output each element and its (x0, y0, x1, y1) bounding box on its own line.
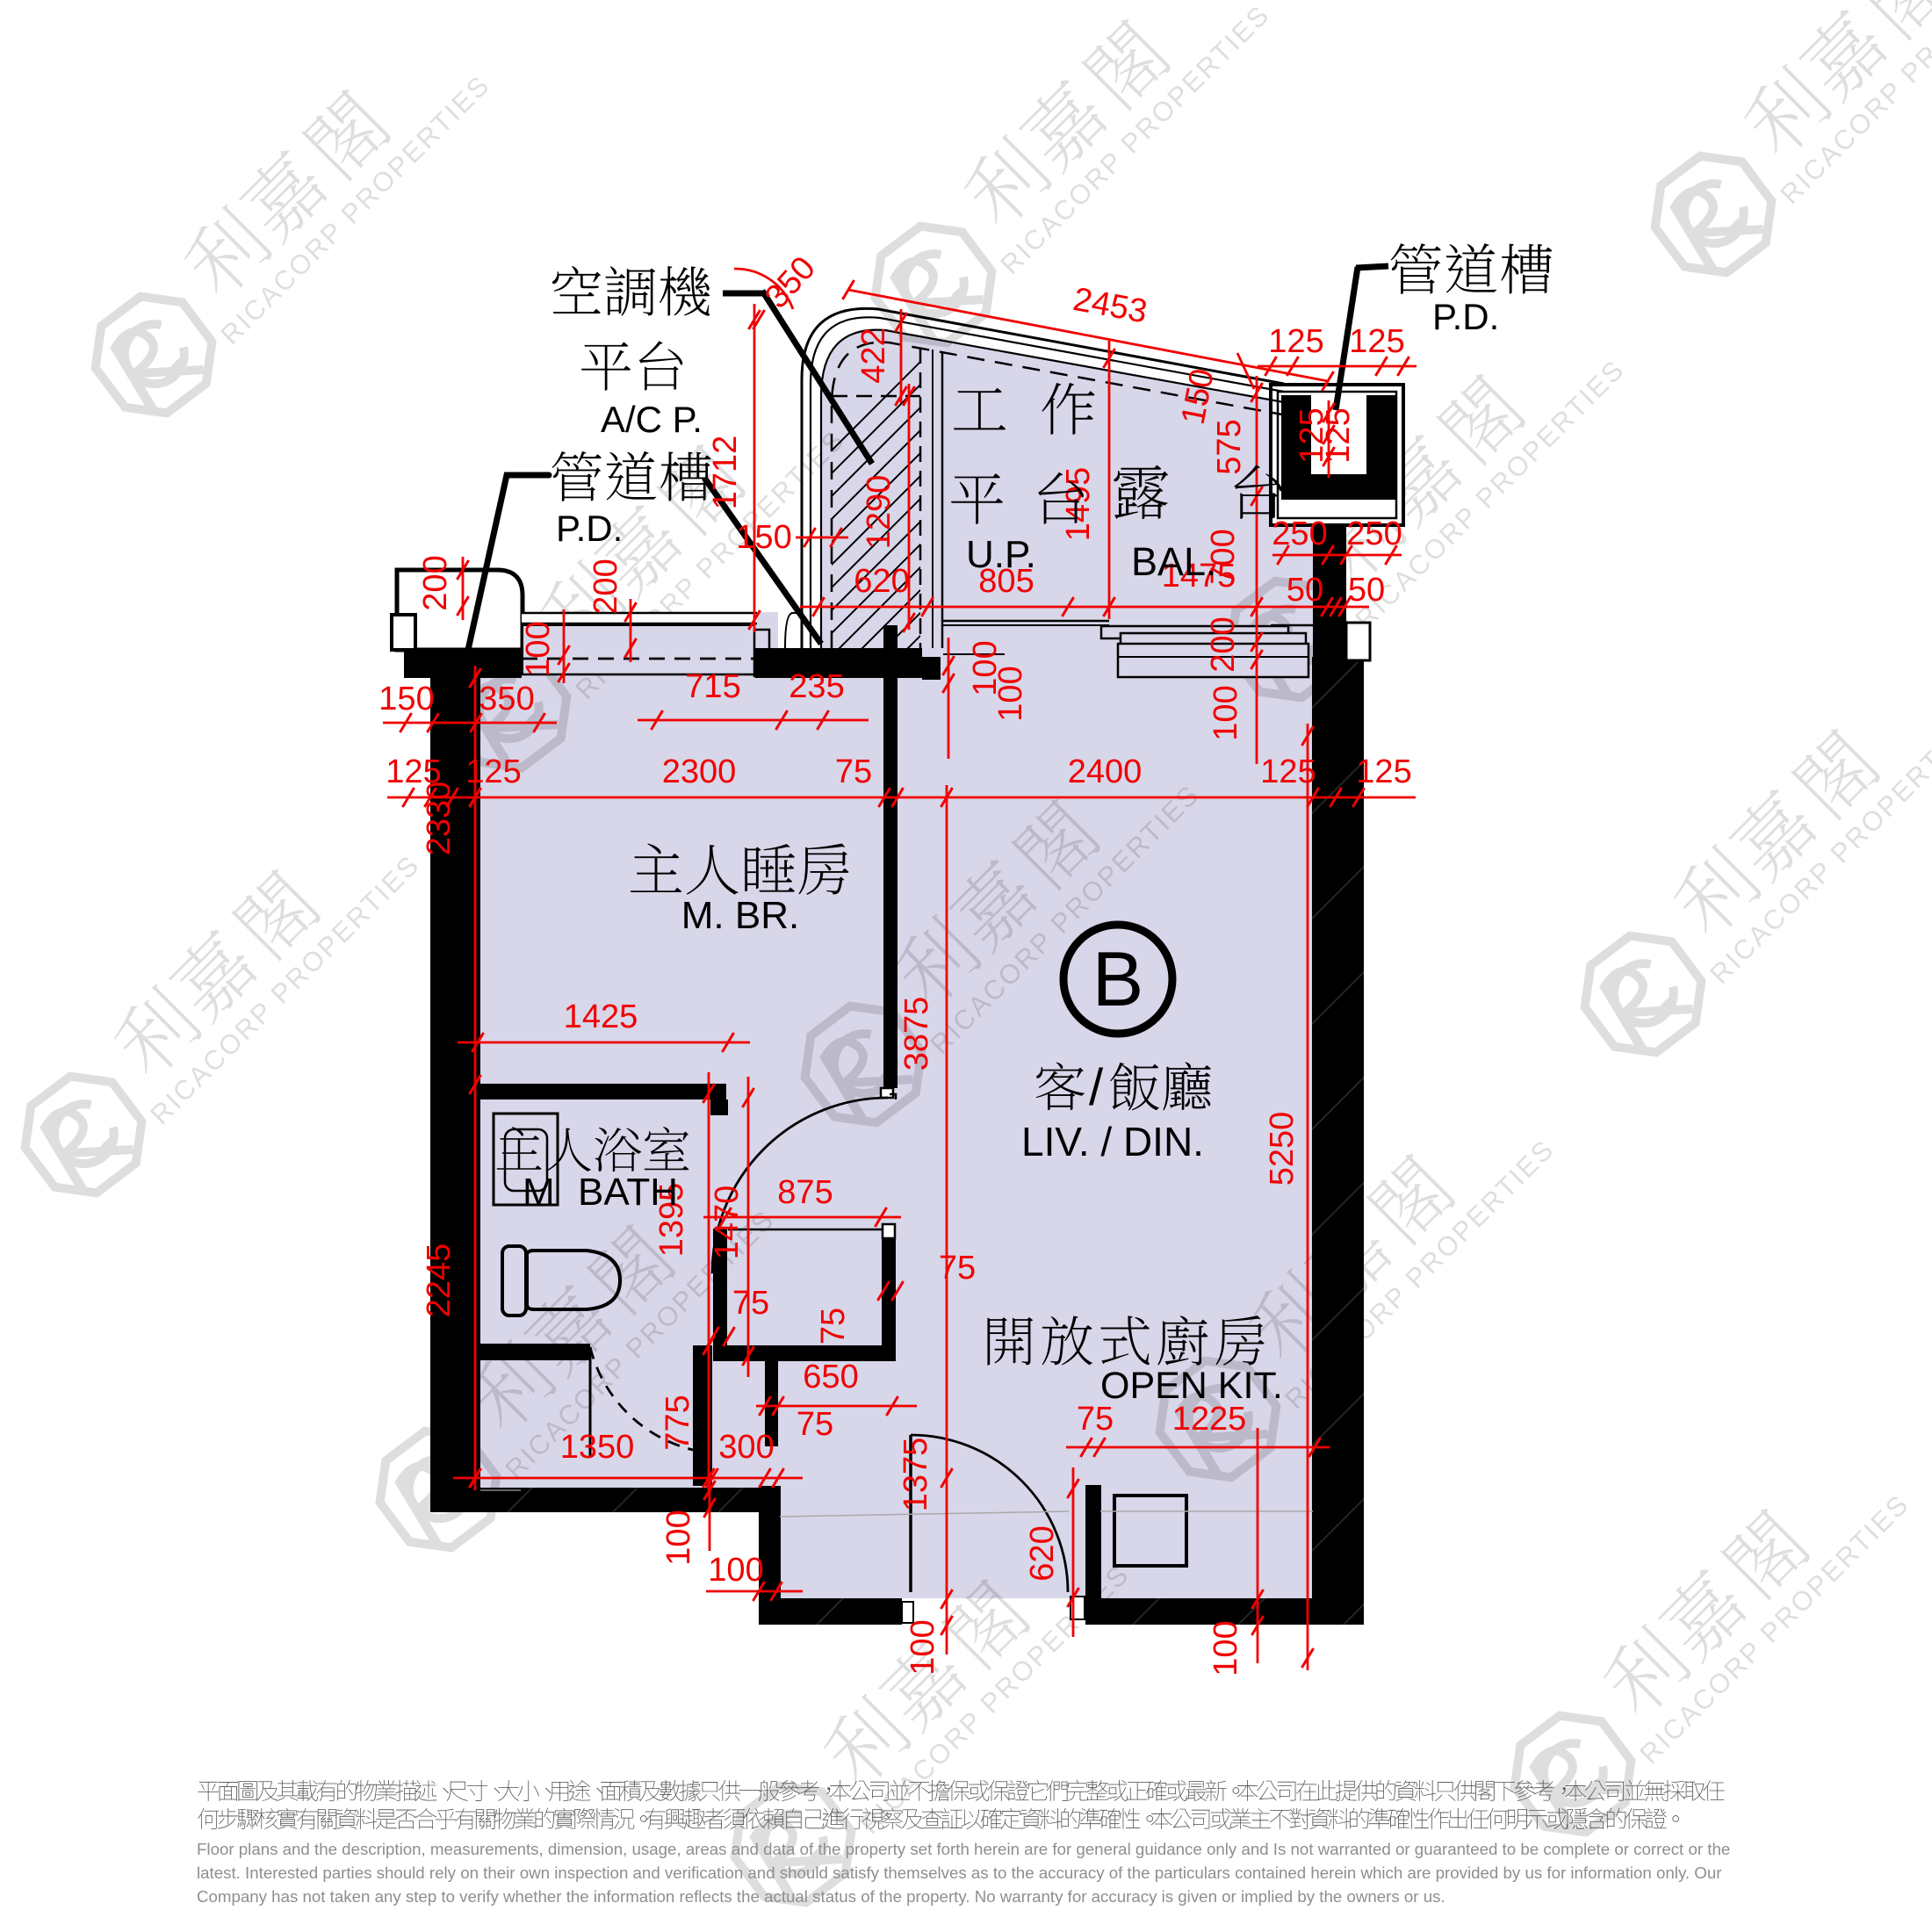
svg-text:125: 125 (1268, 323, 1323, 360)
svg-text:Company has not taken any step: Company has not taken any step to verify… (197, 1887, 1445, 1906)
svg-text:75: 75 (815, 1308, 852, 1344)
svg-text:OPEN KIT.: OPEN KIT. (1100, 1365, 1283, 1407)
svg-text:150: 150 (736, 519, 791, 556)
svg-text:50: 50 (1287, 572, 1323, 609)
svg-text:50: 50 (1348, 572, 1385, 609)
svg-text:75: 75 (797, 1406, 833, 1443)
svg-text:200: 200 (1205, 616, 1242, 672)
svg-text:235: 235 (789, 668, 844, 705)
svg-text:1470: 1470 (709, 1186, 746, 1260)
svg-text:1375: 1375 (898, 1438, 934, 1512)
svg-text:100: 100 (905, 1619, 941, 1675)
svg-text:250: 250 (1272, 515, 1327, 552)
svg-text:620: 620 (1024, 1525, 1061, 1581)
svg-text:U.P.: U.P. (966, 533, 1036, 576)
svg-text:Floor plans and the descriptio: Floor plans and the description, measure… (197, 1840, 1730, 1858)
svg-text:650: 650 (803, 1359, 858, 1395)
svg-text:P.D.: P.D. (556, 508, 623, 549)
svg-text:100: 100 (660, 1510, 697, 1565)
svg-text:M. BR.: M. BR. (681, 894, 799, 937)
svg-text:2330: 2330 (421, 782, 458, 856)
svg-text:100: 100 (520, 621, 557, 676)
svg-text:125: 125 (1349, 323, 1404, 360)
svg-text:BATH: BATH (578, 1171, 678, 1214)
svg-text:100: 100 (992, 666, 1029, 721)
svg-text:/: / (1089, 1059, 1104, 1116)
svg-text:100: 100 (1207, 685, 1244, 740)
svg-text:350: 350 (479, 681, 534, 717)
svg-text:P.D.: P.D. (1432, 296, 1499, 337)
svg-text:2245: 2245 (421, 1244, 458, 1318)
svg-text:100: 100 (1207, 1620, 1244, 1676)
svg-text:BAL.: BAL. (1131, 539, 1217, 584)
svg-text:715: 715 (685, 668, 740, 705)
svg-text:2400: 2400 (1068, 753, 1143, 790)
svg-text:575: 575 (1211, 419, 1248, 474)
svg-text:1290: 1290 (861, 475, 898, 550)
svg-text:latest. Interested parties sho: latest. Interested parties should rely o… (197, 1864, 1721, 1882)
svg-text:300: 300 (718, 1429, 774, 1466)
svg-text:200: 200 (588, 559, 624, 614)
svg-text:M: M (523, 1171, 555, 1214)
svg-text:1350: 1350 (560, 1429, 635, 1466)
svg-text:1495: 1495 (1060, 467, 1097, 542)
svg-text:200: 200 (417, 555, 454, 610)
svg-text:875: 875 (777, 1174, 833, 1211)
svg-text:125: 125 (1356, 753, 1411, 790)
svg-text:75: 75 (835, 753, 872, 790)
svg-text:100: 100 (708, 1552, 763, 1589)
svg-text:775: 775 (660, 1395, 696, 1450)
svg-text:125: 125 (1320, 407, 1357, 463)
svg-text:LIV. / DIN.: LIV. / DIN. (1021, 1119, 1204, 1164)
svg-text:75: 75 (939, 1250, 976, 1287)
svg-text:75: 75 (732, 1285, 769, 1322)
svg-text:1425: 1425 (564, 998, 638, 1035)
svg-text:250: 250 (1346, 515, 1402, 552)
svg-text:A/C P.: A/C P. (601, 399, 703, 440)
svg-text:3875: 3875 (898, 997, 935, 1071)
svg-text:620: 620 (854, 563, 909, 600)
svg-text:150: 150 (378, 681, 434, 717)
svg-text:B: B (1092, 935, 1144, 1022)
svg-text:422: 422 (855, 328, 892, 383)
svg-text:2300: 2300 (662, 753, 737, 790)
svg-text:5250: 5250 (1264, 1112, 1301, 1186)
svg-text:1712: 1712 (707, 436, 744, 510)
